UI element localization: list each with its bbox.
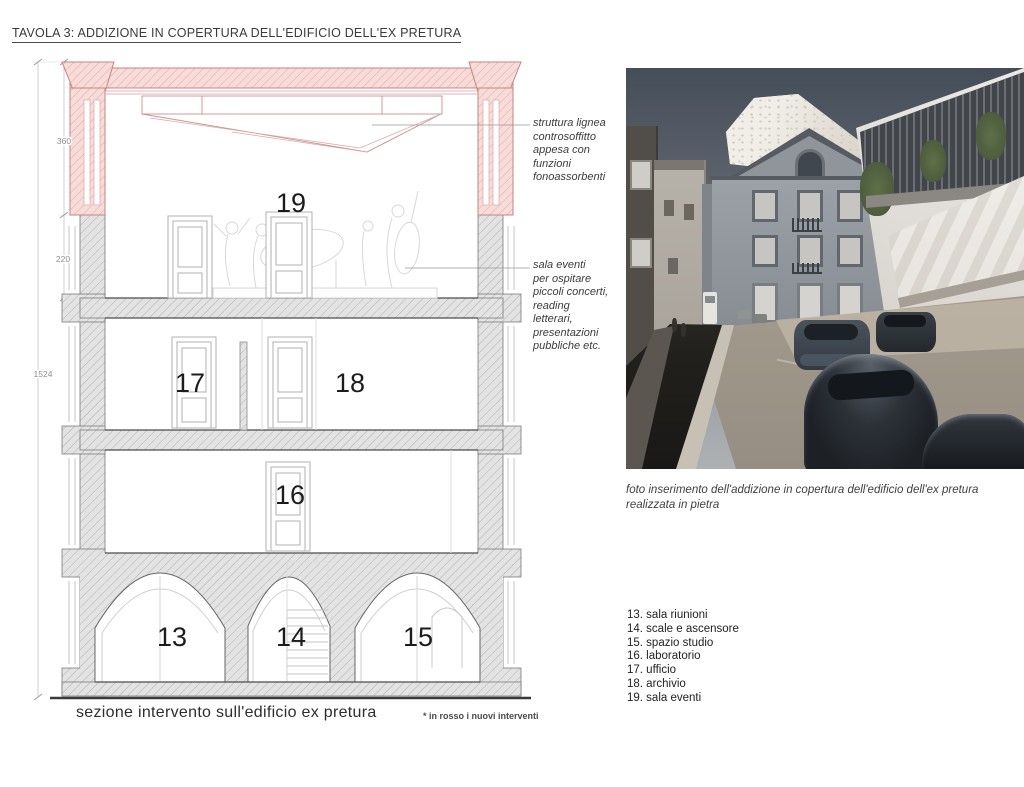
legend-item-13: 13. sala riunioni	[627, 609, 739, 623]
photo-pedestrian	[681, 323, 686, 337]
presentation-board: TAVOLA 3: ADDIZIONE IN COPERTURA DELL'ED…	[0, 0, 1024, 787]
room-number-18: 18	[335, 368, 365, 398]
photo-balcony-rail	[792, 263, 822, 274]
legend-item-17: 17. ufficio	[627, 664, 739, 678]
photo-van-window	[705, 296, 715, 303]
photo-window	[752, 190, 778, 222]
room-number-14: 14	[276, 622, 306, 652]
photo-caption: foto inserimento dell'addizione in coper…	[626, 483, 1022, 513]
photo-pedestrian	[672, 318, 677, 332]
room-number-13: 13	[157, 622, 187, 652]
photo-distant-car	[738, 310, 751, 319]
photo-window	[630, 238, 652, 268]
dim-360: 360	[57, 136, 71, 146]
legend-item-16: 16. laboratorio	[627, 650, 739, 664]
photo-window	[664, 200, 674, 216]
photo-balcony-plant	[920, 140, 946, 182]
photo-window	[684, 204, 694, 220]
room-number-17: 17	[175, 368, 205, 398]
legend-item-15: 15. spazio studio	[627, 637, 739, 651]
room-legend: 13. sala riunioni 14. scale e ascensore …	[627, 609, 739, 706]
red-interventions-note: * in rosso i nuovi interventi	[423, 711, 539, 721]
dim-220: 220	[56, 254, 70, 264]
photo-window	[630, 160, 652, 190]
photo-arched-window	[798, 152, 822, 178]
musicians-sketch	[213, 191, 437, 298]
partition-wall	[240, 342, 247, 430]
dim-1524: 1524	[34, 369, 53, 379]
photo-balcony-rail	[792, 218, 822, 232]
section-caption: sezione intervento sull'edificio ex pret…	[76, 704, 377, 722]
door-18	[268, 337, 312, 428]
photo-window	[837, 235, 863, 267]
room-number-15: 15	[403, 622, 433, 652]
legend-item-19: 19. sala eventi	[627, 692, 739, 706]
photo-balcony-plant	[976, 112, 1006, 160]
photo-left-balcony	[654, 160, 704, 170]
photo-window	[837, 190, 863, 222]
annotation-sala-eventi: sala eventi per ospitare piccoli concert…	[533, 259, 633, 354]
room-number-16: 16	[275, 480, 305, 510]
building-section-drawing: 19 17 18 16 13 14 15 360 220 1524	[0, 0, 560, 760]
photo-window	[668, 258, 678, 274]
door-19b	[266, 212, 312, 298]
door-19a	[168, 216, 212, 298]
photo-distant-car	[754, 314, 767, 323]
photo-car-glass	[827, 369, 915, 401]
photo-car-glass	[884, 315, 926, 327]
room-number-19: 19	[276, 188, 306, 218]
annotation-ceiling: struttura lignea controsoffitto appesa c…	[533, 117, 633, 185]
legend-item-14: 14. scale e ascensore	[627, 623, 739, 637]
photo-balcony-plant	[860, 162, 894, 216]
dimension-labels: 360 220 1524	[34, 136, 72, 379]
legend-item-18: 18. archivio	[627, 678, 739, 692]
photo-car-glass	[804, 324, 858, 340]
photo-window	[752, 235, 778, 267]
photo-parked-car	[876, 312, 936, 352]
photo-inserimento	[626, 68, 1024, 469]
suspended-ceiling	[142, 96, 442, 152]
